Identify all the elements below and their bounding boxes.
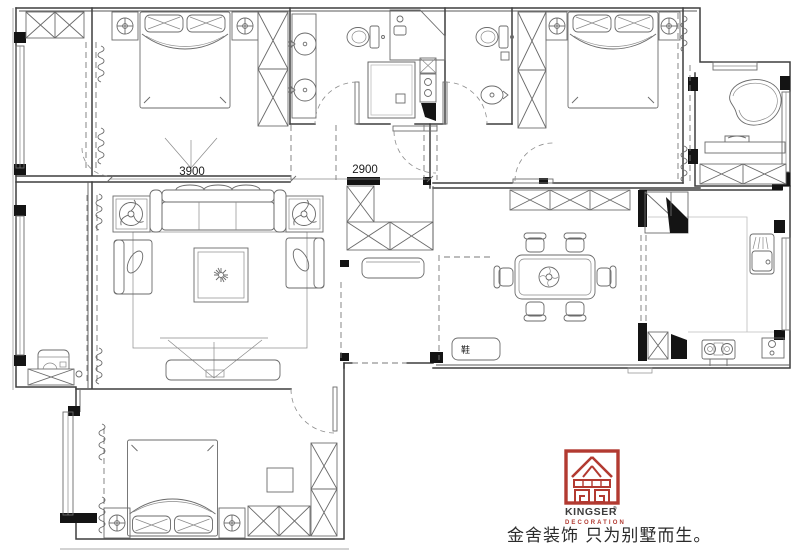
table-lamp-icon [293,200,317,226]
water-heater [420,58,436,121]
dining-chair [524,302,546,321]
double-bed-icon [128,440,218,536]
dining-chair [564,233,586,252]
door-arc [315,82,357,124]
bedside-lamp-icon [109,515,125,531]
window-balcony-living [16,216,24,355]
dimension-label: 2900 [352,164,378,176]
dining-room: 鞋 [452,190,652,373]
door-arc [515,143,553,181]
dining-chair [564,302,586,321]
door-arc [445,82,487,124]
structural-columns [14,32,790,523]
stove-icon [702,340,735,366]
table-lamp-icon [120,200,144,226]
bedroom-bottom [104,387,337,538]
bedside-lamp-icon [237,18,253,34]
study-room [700,80,786,184]
double-bed-icon [140,12,230,108]
small-table [267,468,293,492]
living-room [113,185,324,380]
bedroom-top-left [82,12,288,176]
kitchen-sink-icon [750,234,774,274]
bedside-lamp-icon [117,18,133,34]
toilet-icon [476,26,514,48]
centerpiece-icon [539,267,559,287]
toilet-icon [347,26,385,48]
shoe-cabinet: 鞋 [452,338,500,360]
rug [133,232,307,348]
plant-icon [214,268,228,282]
cabinet [700,164,786,184]
windows [16,46,790,515]
bedside-lamp-icon [224,515,240,531]
dimension-label: 3900 [179,166,205,178]
floor-drain-icon [76,371,82,377]
armchair [286,238,324,288]
dining-chair [597,266,616,288]
side-table [286,196,323,232]
window-bedroom-bottom [63,412,73,515]
exterior-walls [13,8,790,549]
balcony-living [28,350,82,385]
desk [705,142,785,153]
cabinet [510,190,630,210]
bedside-lamp-icon [661,18,677,34]
shoe-cabinet-label: 鞋 [461,344,470,355]
wardrobe [518,12,546,128]
balcony-top-left [26,12,84,38]
bathroom-right [443,26,514,124]
sofa [150,185,286,232]
window-balcony-top-left [16,46,24,168]
bathroom-left [288,14,385,124]
logo: KINGSER ® DECORATION 金舍装饰 只为别墅而生。 [507,451,711,546]
floor-plan-drawing: 鞋 3900 [0,0,800,557]
coffee-table [194,248,248,302]
lounge-chair-icon [730,80,782,126]
curtain-icon [98,46,104,82]
counter-cabinet [762,338,784,358]
floor-plan: 鞋 3900 [0,0,800,557]
kitchen [645,192,784,366]
wardrobe [311,443,337,536]
kingser-logo-icon [566,451,618,503]
window-study-right [782,92,790,172]
curtain-symbols [96,16,687,533]
dining-chair [494,266,513,288]
brand-name: KINGSER [565,506,617,518]
fridge-icon [645,192,688,233]
brand-tagline: 金舍装饰 只为别墅而生。 [507,526,711,546]
window-study-top [713,62,757,70]
window-kitchen-right [782,238,790,330]
door-leaf [333,387,337,431]
shower-room [368,10,445,121]
wardrobe [258,12,288,126]
tv-wall [160,338,280,380]
door-leaf [355,82,359,124]
double-bed-icon [568,12,658,108]
bedroom-top-right [513,12,680,183]
dining-chair [524,233,546,252]
kitchen-column [671,334,687,359]
side-table [113,196,150,232]
wardrobe [248,506,310,536]
storage-hall [347,186,433,278]
bench [362,258,424,278]
sink-icon [481,86,503,104]
door-arc [291,389,335,433]
dining-table [515,255,595,299]
dimension-2900: 2900 [293,164,433,182]
registered-mark: ® [613,505,617,512]
vanity-counter [292,14,316,118]
bedside-lamp-icon [549,18,565,34]
